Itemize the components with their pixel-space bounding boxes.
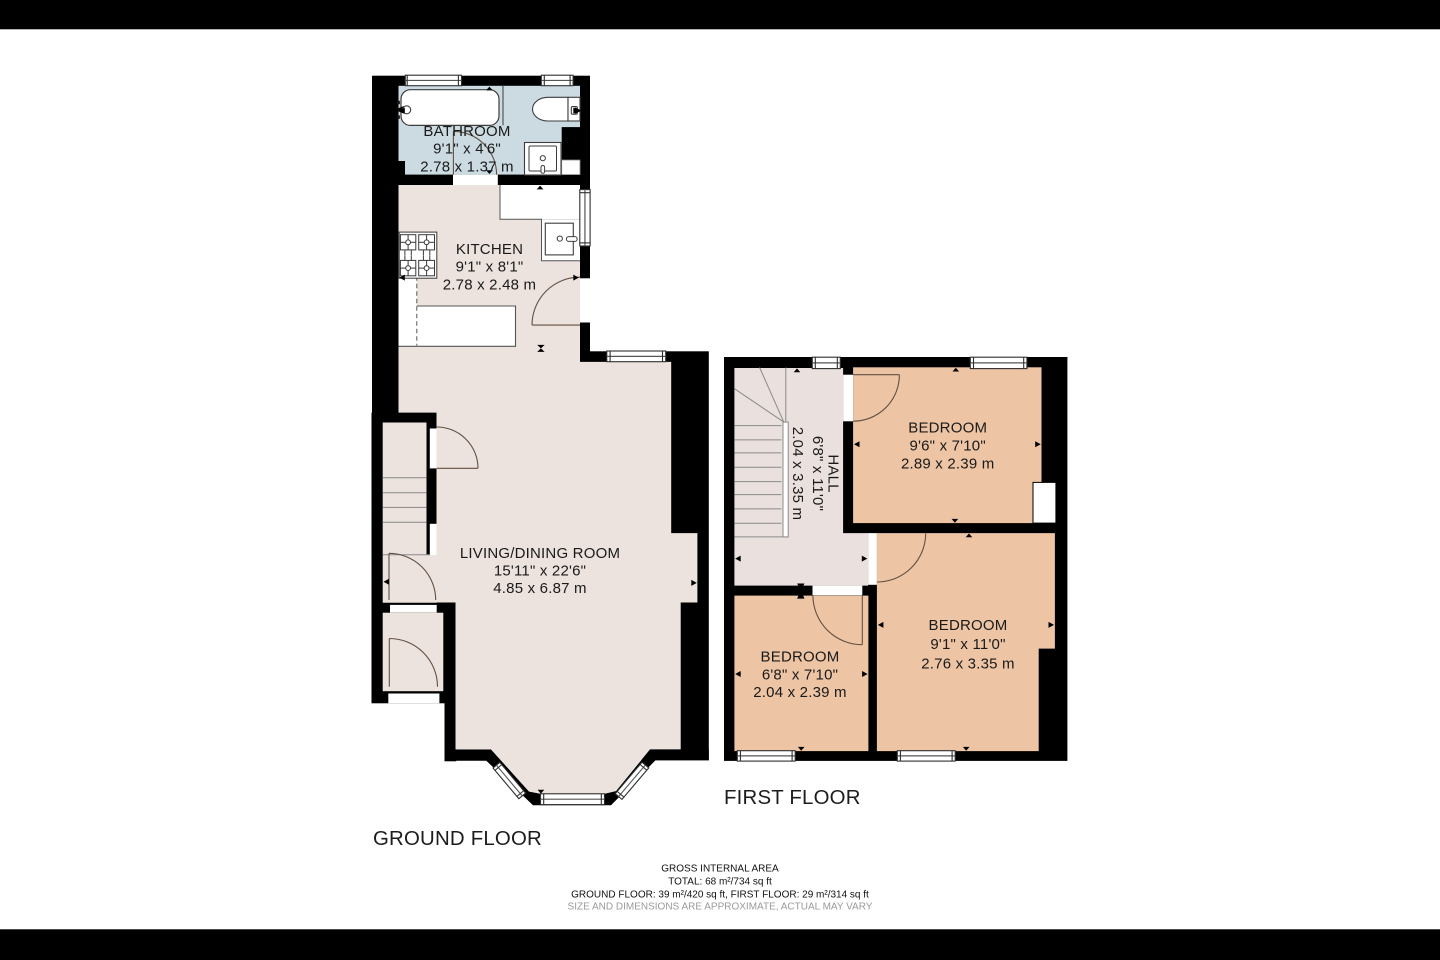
svg-text:KITCHEN: KITCHEN [456,241,523,258]
svg-text:2.89 x 2.39 m: 2.89 x 2.39 m [901,456,995,473]
svg-text:BEDROOM: BEDROOM [761,648,840,665]
svg-text:BATHROOM: BATHROOM [423,123,510,140]
svg-text:9'1" x 4'6": 9'1" x 4'6" [433,140,501,157]
svg-text:GROSS INTERNAL AREA: GROSS INTERNAL AREA [661,864,779,875]
svg-text:2.78 x 2.48 m: 2.78 x 2.48 m [443,276,537,293]
svg-text:BEDROOM: BEDROOM [929,617,1008,634]
svg-text:2.04 x 3.35 m: 2.04 x 3.35 m [789,427,806,521]
svg-text:6'8" x 11'0": 6'8" x 11'0" [809,436,826,511]
svg-text:LIVING/DINING ROOM: LIVING/DINING ROOM [460,545,620,562]
svg-text:2.78 x 1.37 m: 2.78 x 1.37 m [420,159,514,176]
svg-text:6'8" x 7'10": 6'8" x 7'10" [762,666,838,683]
svg-text:9'6" x 7'10": 9'6" x 7'10" [910,437,986,454]
svg-text:SIZE AND DIMENSIONS ARE APPROX: SIZE AND DIMENSIONS ARE APPROXIMATE, ACT… [568,902,873,913]
svg-text:9'1" x 8'1": 9'1" x 8'1" [456,259,524,276]
svg-text:9'1" x 11'0": 9'1" x 11'0" [930,636,1005,653]
svg-text:15'11" x 22'6": 15'11" x 22'6" [494,562,586,579]
svg-text:GROUND FLOOR: GROUND FLOOR [373,828,542,850]
svg-text:TOTAL: 68 m²/734 sq ft: TOTAL: 68 m²/734 sq ft [668,877,772,888]
svg-text:FIRST FLOOR: FIRST FLOOR [724,787,861,809]
svg-text:2.04 x 2.39 m: 2.04 x 2.39 m [753,684,847,701]
svg-text:GROUND FLOOR: 39 m²/420 sq ft,: GROUND FLOOR: 39 m²/420 sq ft, FIRST FLO… [571,890,869,901]
svg-text:4.85 x 6.87 m: 4.85 x 6.87 m [493,580,587,597]
svg-text:HALL: HALL [825,454,842,492]
svg-text:BEDROOM: BEDROOM [908,419,987,436]
svg-text:2.76 x 3.35 m: 2.76 x 3.35 m [921,655,1015,672]
